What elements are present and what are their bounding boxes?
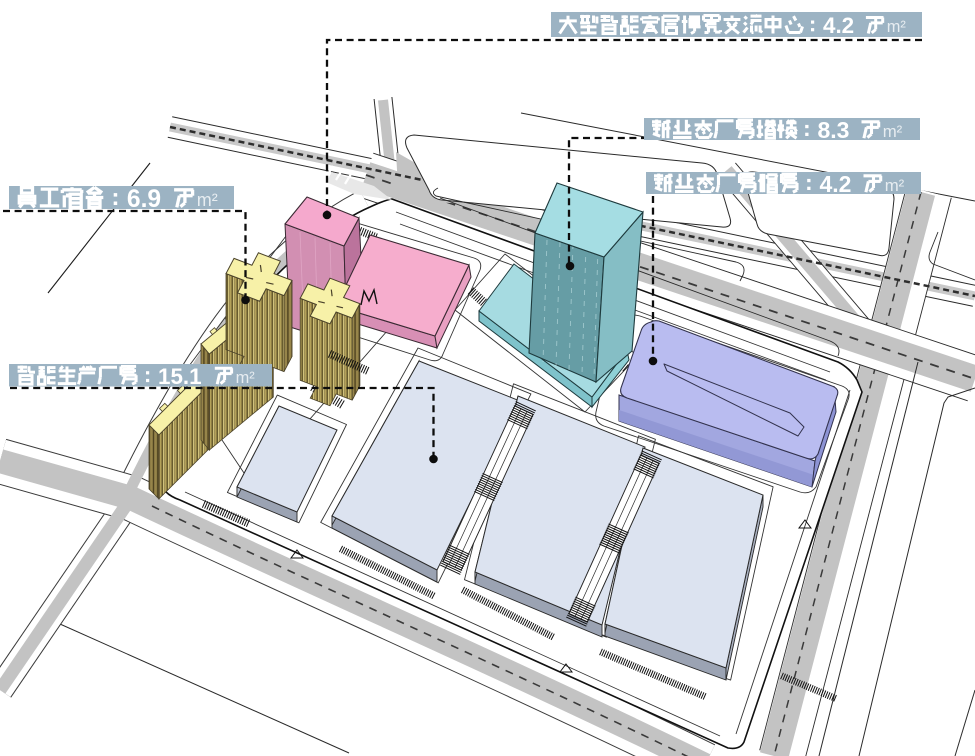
svg-text:m²: m² <box>197 190 218 210</box>
svg-text:4.2: 4.2 <box>823 13 854 38</box>
svg-text:4.2: 4.2 <box>820 171 852 197</box>
svg-text:8.3: 8.3 <box>818 117 850 143</box>
svg-text:6.9: 6.9 <box>127 186 161 213</box>
svg-text:15.1: 15.1 <box>158 364 202 389</box>
svg-text:m²: m² <box>236 369 256 387</box>
svg-text:m²: m² <box>887 18 907 36</box>
svg-text:m²: m² <box>883 122 903 141</box>
svg-text:m²: m² <box>885 176 905 195</box>
